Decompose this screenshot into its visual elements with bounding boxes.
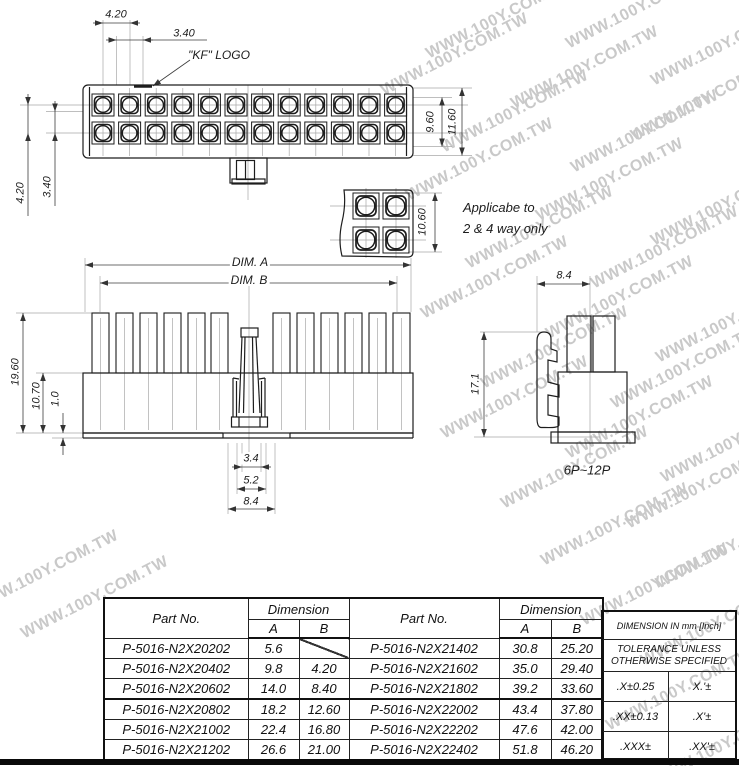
parts-table: Part No. Dimension Part No. Dimension A … [103, 597, 604, 761]
part-no-cell: P-5016-N2X20202 [104, 638, 248, 659]
dim-label-b: DIM. B [229, 274, 270, 286]
tolerance-subtitle-line1: TOLERANCE UNLESS [617, 644, 721, 656]
dim-label-a: DIM. A [230, 256, 270, 268]
tolerance-subtitle-line2: OTHERWISE SPECIFIED [611, 656, 727, 668]
tolerance-title: DIMENSION IN mm [Inch] [603, 612, 735, 640]
note-line-1: Applicabe to [463, 201, 535, 214]
table-row: P-5016-N2X20202 5.6 P-5016-N2X21402 30.8… [104, 638, 603, 659]
note-line-2: 2 & 4 way only [463, 222, 548, 235]
dim-b-cell: 21.00 [299, 740, 349, 761]
part-no-cell: P-5016-N2X21802 [349, 679, 499, 700]
dim-label-h-inner: 9.60 [426, 111, 437, 132]
dim-b-cell: 46.20 [551, 740, 603, 761]
dim-label-pitch-v: 4.20 [16, 182, 27, 203]
dim-b-cell: 16.80 [299, 720, 349, 740]
dim-a-cell: 51.8 [499, 740, 551, 761]
col-b-left: B [299, 620, 349, 639]
dim-label-pin-w: 3.40 [171, 29, 196, 40]
dim-label-pin-h: 3.40 [43, 176, 54, 197]
dim-label-lip: 1.0 [51, 391, 62, 406]
tolerance-inch: X.'± [669, 672, 735, 701]
header-part-right: Part No. [349, 598, 499, 638]
part-no-cell: P-5016-N2X20602 [104, 679, 248, 700]
aux-2x4-view [340, 190, 413, 257]
dim-a-cell: 9.8 [248, 659, 299, 679]
dim-a-cell: 47.6 [499, 720, 551, 740]
dim-a-cell: 35.0 [499, 659, 551, 679]
dim-label-end-w: 8.4 [554, 271, 573, 282]
end-view [537, 316, 635, 443]
tolerance-row: .XXX± .XX'± [603, 732, 735, 762]
tolerance-mm: .XX±0.13 [603, 702, 669, 731]
dim-b-cell: 29.40 [551, 659, 603, 679]
dim-b-cell: 33.60 [551, 679, 603, 700]
connector-bodies [83, 85, 635, 443]
dim-label-total-h: 19.60 [11, 358, 22, 386]
dim-a-cell: 14.0 [248, 679, 299, 700]
table-row: P-5016-N2X20802 18.2 12.60 P-5016-N2X220… [104, 699, 603, 720]
bottom-border-bar [0, 759, 739, 765]
dim-b-cell: 37.80 [551, 699, 603, 720]
dim-a-cell: 22.4 [248, 720, 299, 740]
tolerance-inch: .XX'± [669, 732, 735, 762]
dim-b-cell: 4.20 [299, 659, 349, 679]
table-row: P-5016-N2X21202 26.6 21.00 P-5016-N2X224… [104, 740, 603, 761]
pin-range-label: 6P~12P [564, 464, 611, 477]
table-row: P-5016-N2X20602 14.0 8.40 P-5016-N2X2180… [104, 679, 603, 700]
dim-b-cell-na [299, 638, 349, 659]
kf-logo-label: "KF" LOGO [188, 49, 250, 61]
dim-b-cell: 25.20 [551, 638, 603, 659]
dim-a-cell: 26.6 [248, 740, 299, 761]
tolerance-box: DIMENSION IN mm [Inch] TOLERANCE UNLESS … [601, 610, 737, 760]
table-row: P-5016-N2X20402 9.8 4.20 P-5016-N2X21602… [104, 659, 603, 679]
dim-b-cell: 8.40 [299, 679, 349, 700]
tolerance-row: .X±0.25 X.'± [603, 672, 735, 702]
part-no-cell: P-5016-N2X21602 [349, 659, 499, 679]
dim-label-slot-w1: 3.4 [241, 454, 260, 465]
header-dim-left: Dimension [248, 598, 349, 620]
side-view [83, 313, 413, 438]
part-no-cell: P-5016-N2X21402 [349, 638, 499, 659]
drawing-sheet: WWW.100Y.COM.TWWWW.100Y.COM.TWWWW.100Y.C… [0, 0, 739, 766]
dim-a-cell: 30.8 [499, 638, 551, 659]
col-b-right: B [551, 620, 603, 639]
part-no-cell: P-5016-N2X20802 [104, 699, 248, 720]
col-a-right: A [499, 620, 551, 639]
header-part-left: Part No. [104, 598, 248, 638]
dim-label-h-outer: 11.60 [448, 109, 459, 136]
tolerance-mm: .XXX± [603, 732, 669, 762]
dim-label-end-h: 17.1 [471, 373, 482, 394]
dim-b-cell: 42.00 [551, 720, 603, 740]
part-no-cell: P-5016-N2X22402 [349, 740, 499, 761]
col-a-left: A [248, 620, 299, 639]
table-row: P-5016-N2X21002 22.4 16.80 P-5016-N2X222… [104, 720, 603, 740]
header-dim-right: Dimension [499, 598, 603, 620]
part-no-cell: P-5016-N2X21202 [104, 740, 248, 761]
tolerance-subtitle: TOLERANCE UNLESS OTHERWISE SPECIFIED [603, 640, 735, 672]
part-no-cell: P-5016-N2X22002 [349, 699, 499, 720]
dim-a-cell: 5.6 [248, 638, 299, 659]
tolerance-mm: .X±0.25 [603, 672, 669, 701]
dim-b-cell: 12.60 [299, 699, 349, 720]
dim-a-cell: 18.2 [248, 699, 299, 720]
dim-label-slot-w3: 8.4 [241, 497, 260, 508]
dim-label-pitch-h: 4.20 [105, 10, 126, 21]
dim-a-cell: 43.4 [499, 699, 551, 720]
part-no-cell: P-5016-N2X20402 [104, 659, 248, 679]
dim-a-cell: 39.2 [499, 679, 551, 700]
part-no-cell: P-5016-N2X21002 [104, 720, 248, 740]
dim-label-body-h: 10.70 [32, 382, 43, 410]
tolerance-row: .XX±0.13 .X'± [603, 702, 735, 732]
dim-label-slot-w2: 5.2 [241, 476, 260, 487]
dim-label-small-h: 10.60 [418, 208, 429, 236]
part-no-cell: P-5016-N2X22202 [349, 720, 499, 740]
tolerance-inch: .X'± [669, 702, 735, 731]
